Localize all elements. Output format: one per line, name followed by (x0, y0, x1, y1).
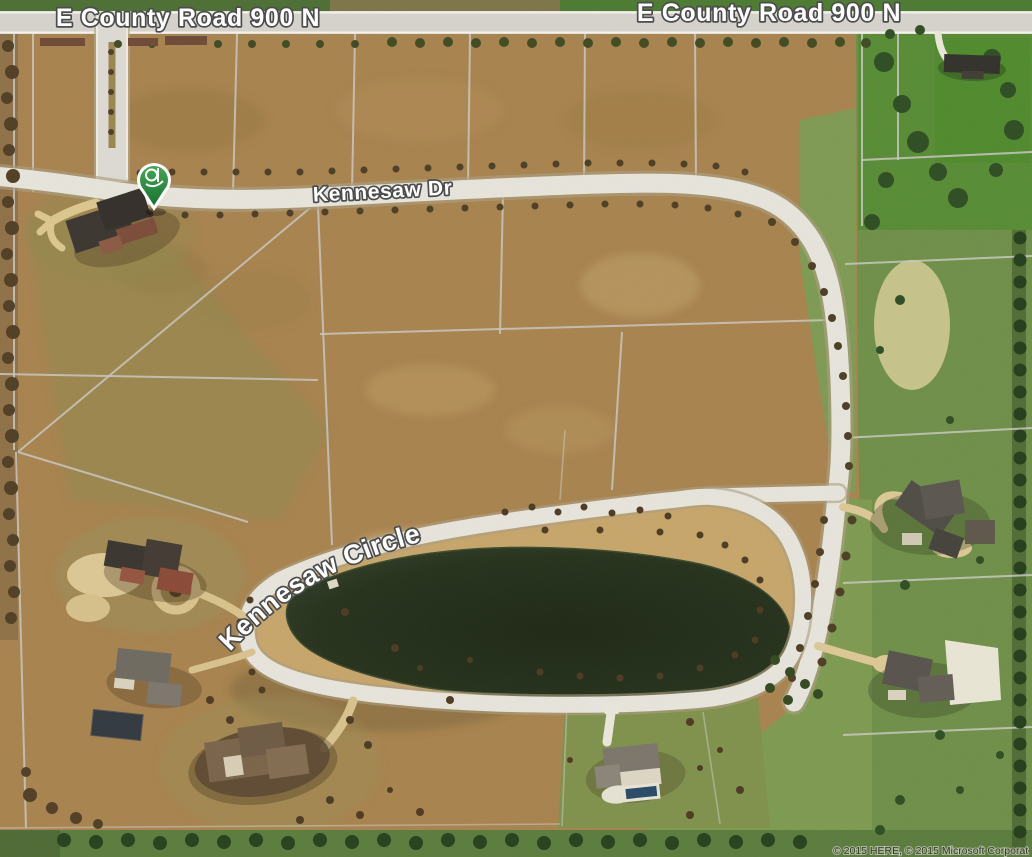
aerial-map-view[interactable]: E County Road 900 N E County Road 900 N … (0, 0, 1032, 857)
map-attribution: © 2015 HERE, © 2015 Microsoft Corporat (833, 845, 1028, 857)
label-county-road-left: E County Road 900 N (56, 4, 320, 32)
label-county-road-right: E County Road 900 N (637, 0, 901, 27)
photo-grain-overlay (0, 0, 1032, 857)
